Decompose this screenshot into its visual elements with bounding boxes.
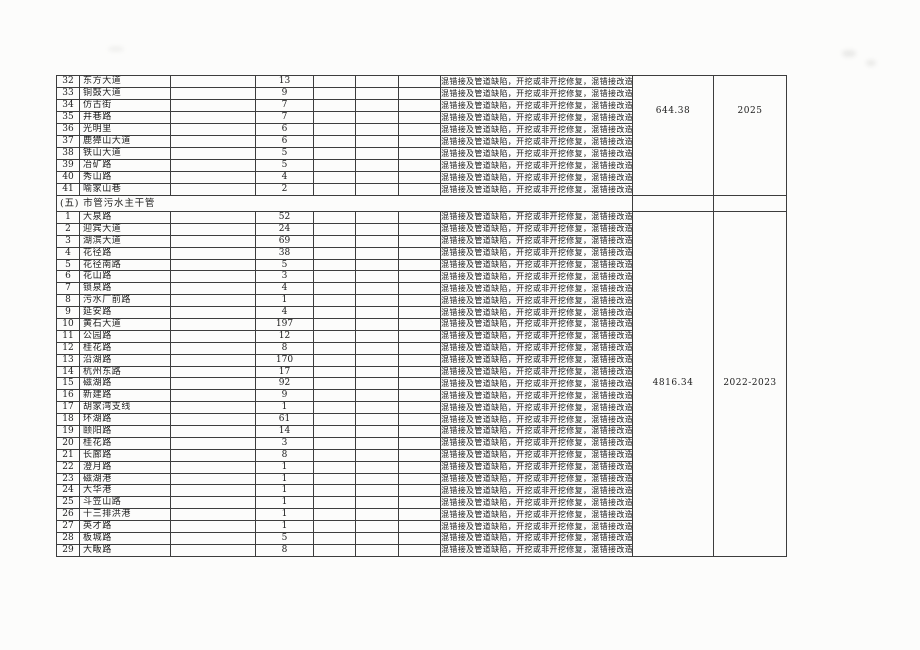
- defect-count-cell: 3: [256, 271, 314, 283]
- empty-cell: [356, 247, 399, 259]
- rehab-method-cell: 混错接及管道缺陷，开挖或非开挖修复，混错接改造: [441, 136, 633, 148]
- empty-cell: [399, 414, 441, 426]
- empty-cell: [356, 497, 399, 509]
- street-name-cell: 长廊路: [80, 449, 171, 461]
- empty-cell: [356, 533, 399, 545]
- street-name-cell: 磁湖港: [80, 473, 171, 485]
- street-name-cell: 冶矿路: [80, 160, 171, 172]
- empty-cell: [356, 330, 399, 342]
- empty-cell: [356, 212, 399, 224]
- empty-cell: [356, 295, 399, 307]
- table-row: 1大泉路52混错接及管道缺陷，开挖或非开挖修复，混错接改造4816.342022…: [57, 212, 787, 224]
- rehab-method-cell: 混错接及管道缺陷，开挖或非开挖修复，混错接改造: [441, 271, 633, 283]
- defect-count-cell: 24: [256, 223, 314, 235]
- empty-cell: [356, 437, 399, 449]
- row-number-cell: 27: [57, 521, 80, 533]
- rehab-method-cell: 混错接及管道缺陷，开挖或非开挖修复，混错接改造: [441, 212, 633, 224]
- empty-cell: [399, 366, 441, 378]
- row-number-cell: 12: [57, 342, 80, 354]
- row-number-cell: 36: [57, 124, 80, 136]
- empty-cell: [171, 259, 256, 271]
- rehab-method-cell: 混错接及管道缺陷，开挖或非开挖修复，混错接改造: [441, 426, 633, 438]
- defect-count-cell: 38: [256, 247, 314, 259]
- street-name-cell: 新建路: [80, 390, 171, 402]
- empty-cell: [399, 521, 441, 533]
- implementation-years-cell: 2022-2023: [714, 212, 787, 557]
- empty-cell: [314, 88, 356, 100]
- rehab-method-cell: 混错接及管道缺陷，开挖或非开挖修复，混错接改造: [441, 148, 633, 160]
- street-name-cell: 板城路: [80, 533, 171, 545]
- empty-cell: [399, 295, 441, 307]
- empty-cell: [314, 172, 356, 184]
- empty-cell: [314, 148, 356, 160]
- empty-cell: [399, 160, 441, 172]
- scan-artifact: [866, 60, 876, 66]
- defect-count-cell: 1: [256, 461, 314, 473]
- sewage-pipe-rehab-table: 32东方大道13混错接及管道缺陷，开挖或非开挖修复，混错接改造644.38202…: [56, 75, 787, 557]
- street-name-cell: 迎宾大道: [80, 223, 171, 235]
- rehab-method-cell: 混错接及管道缺陷，开挖或非开挖修复，混错接改造: [441, 223, 633, 235]
- row-number-cell: 14: [57, 366, 80, 378]
- defect-count-cell: 8: [256, 449, 314, 461]
- empty-cell: [356, 235, 399, 247]
- empty-cell: [399, 533, 441, 545]
- empty-cell: [399, 283, 441, 295]
- empty-cell: [171, 172, 256, 184]
- row-number-cell: 22: [57, 461, 80, 473]
- section-header-row: (五) 市管污水主干管: [57, 196, 787, 212]
- row-number-cell: 25: [57, 497, 80, 509]
- empty-cell: [314, 485, 356, 497]
- row-number-cell: 40: [57, 172, 80, 184]
- rehab-method-cell: 混错接及管道缺陷，开挖或非开挖修复，混错接改造: [441, 76, 633, 88]
- street-name-cell: 杭州东路: [80, 366, 171, 378]
- empty-cell: [356, 449, 399, 461]
- street-name-cell: 桂花路: [80, 342, 171, 354]
- empty-cell: [171, 497, 256, 509]
- empty-cell: [171, 223, 256, 235]
- empty-cell: [314, 184, 356, 196]
- empty-cell: [171, 283, 256, 295]
- row-number-cell: 6: [57, 271, 80, 283]
- street-name-cell: 秀山路: [80, 172, 171, 184]
- empty-cell: [314, 533, 356, 545]
- street-name-cell: 仿古街: [80, 100, 171, 112]
- row-number-cell: 39: [57, 160, 80, 172]
- street-name-cell: 环湖路: [80, 414, 171, 426]
- empty-cell: [356, 100, 399, 112]
- defect-count-cell: 7: [256, 112, 314, 124]
- row-number-cell: 5: [57, 259, 80, 271]
- empty-cell: [356, 485, 399, 497]
- empty-cell: [399, 426, 441, 438]
- empty-cell: [314, 366, 356, 378]
- empty-cell: [399, 259, 441, 271]
- street-name-cell: 斗笠山路: [80, 497, 171, 509]
- empty-cell: [314, 100, 356, 112]
- row-number-cell: 24: [57, 485, 80, 497]
- street-name-cell: 污水厂前路: [80, 295, 171, 307]
- empty-cell: [356, 461, 399, 473]
- rehab-method-cell: 混错接及管道缺陷，开挖或非开挖修复，混错接改造: [441, 378, 633, 390]
- empty-cell: [171, 76, 256, 88]
- empty-cell: [171, 295, 256, 307]
- empty-cell: [314, 259, 356, 271]
- defect-count-cell: 7: [256, 100, 314, 112]
- row-number-cell: 28: [57, 533, 80, 545]
- empty-cell: [171, 148, 256, 160]
- empty-cell: [314, 295, 356, 307]
- empty-cell: [171, 473, 256, 485]
- empty-cell: [171, 88, 256, 100]
- row-number-cell: 8: [57, 295, 80, 307]
- defect-count-cell: 1: [256, 509, 314, 521]
- empty-cell: [399, 319, 441, 331]
- row-number-cell: 37: [57, 136, 80, 148]
- empty-cell: [356, 259, 399, 271]
- rehab-method-cell: 混错接及管道缺陷，开挖或非开挖修复，混错接改造: [441, 533, 633, 545]
- row-number-cell: 26: [57, 509, 80, 521]
- defect-count-cell: 4: [256, 307, 314, 319]
- rehab-method-cell: 混错接及管道缺陷，开挖或非开挖修复，混错接改造: [441, 366, 633, 378]
- rehab-method-cell: 混错接及管道缺陷，开挖或非开挖修复，混错接改造: [441, 521, 633, 533]
- defect-count-cell: 9: [256, 390, 314, 402]
- street-name-cell: 铜鼓大道: [80, 88, 171, 100]
- empty-cell: [171, 521, 256, 533]
- defect-count-cell: 8: [256, 342, 314, 354]
- defect-count-cell: 5: [256, 533, 314, 545]
- defect-count-cell: 8: [256, 544, 314, 556]
- empty-cell: [399, 112, 441, 124]
- empty-cell: [356, 160, 399, 172]
- street-name-cell: 大华港: [80, 485, 171, 497]
- row-number-cell: 21: [57, 449, 80, 461]
- empty-cell: [399, 509, 441, 521]
- rehab-method-cell: 混错接及管道缺陷，开挖或非开挖修复，混错接改造: [441, 354, 633, 366]
- defect-count-cell: 5: [256, 160, 314, 172]
- scan-artifact: [108, 46, 124, 52]
- row-number-cell: 16: [57, 390, 80, 402]
- empty-cell: [399, 235, 441, 247]
- row-number-cell: 9: [57, 307, 80, 319]
- row-number-cell: 19: [57, 426, 80, 438]
- defect-count-cell: 6: [256, 136, 314, 148]
- empty-cell: [171, 378, 256, 390]
- defect-count-cell: 4: [256, 283, 314, 295]
- defect-count-cell: 1: [256, 497, 314, 509]
- row-number-cell: 3: [57, 235, 80, 247]
- street-name-cell: 东方大道: [80, 76, 171, 88]
- table-row: 32东方大道13混错接及管道缺陷，开挖或非开挖修复，混错接改造644.38202…: [57, 76, 787, 88]
- empty-cell: [399, 247, 441, 259]
- rehab-method-cell: 混错接及管道缺陷，开挖或非开挖修复，混错接改造: [441, 330, 633, 342]
- street-name-cell: 公园路: [80, 330, 171, 342]
- defect-count-cell: 2: [256, 184, 314, 196]
- rehab-method-cell: 混错接及管道缺陷，开挖或非开挖修复，混错接改造: [441, 437, 633, 449]
- empty-cell: [171, 307, 256, 319]
- street-name-cell: 黄石大道: [80, 319, 171, 331]
- defect-count-cell: 13: [256, 76, 314, 88]
- defect-count-cell: 69: [256, 235, 314, 247]
- empty-cell: [399, 378, 441, 390]
- empty-cell: [171, 160, 256, 172]
- empty-cell: [356, 124, 399, 136]
- empty-cell: [356, 414, 399, 426]
- empty-cell: [314, 330, 356, 342]
- defect-count-cell: 197: [256, 319, 314, 331]
- empty-cell: [171, 414, 256, 426]
- empty-cell: [356, 148, 399, 160]
- rehab-method-cell: 混错接及管道缺陷，开挖或非开挖修复，混错接改造: [441, 497, 633, 509]
- empty-cell: [171, 235, 256, 247]
- empty-cell: [171, 533, 256, 545]
- defect-count-cell: 92: [256, 378, 314, 390]
- street-name-cell: 花径路: [80, 247, 171, 259]
- rehab-method-cell: 混错接及管道缺陷，开挖或非开挖修复，混错接改造: [441, 112, 633, 124]
- rehab-method-cell: 混错接及管道缺陷，开挖或非开挖修复，混错接改造: [441, 172, 633, 184]
- empty-cell: [314, 124, 356, 136]
- empty-cell: [314, 521, 356, 533]
- empty-cell: [314, 544, 356, 556]
- empty-cell: [399, 184, 441, 196]
- empty-cell: [171, 212, 256, 224]
- empty-cell: [399, 497, 441, 509]
- empty-cell: [314, 378, 356, 390]
- empty-cell: [399, 88, 441, 100]
- empty-cell: [314, 160, 356, 172]
- rehab-method-cell: 混错接及管道缺陷，开挖或非开挖修复，混错接改造: [441, 390, 633, 402]
- rehab-method-cell: 混错接及管道缺陷，开挖或非开挖修复，混错接改造: [441, 449, 633, 461]
- defect-count-cell: 6: [256, 124, 314, 136]
- empty-cell: [171, 402, 256, 414]
- empty-cell: [356, 544, 399, 556]
- empty-cell: [314, 223, 356, 235]
- document-page: 32东方大道13混错接及管道缺陷，开挖或非开挖修复，混错接改造644.38202…: [0, 0, 920, 650]
- empty-cell: [356, 366, 399, 378]
- empty-cell: [171, 354, 256, 366]
- street-name-cell: 喻家山巷: [80, 184, 171, 196]
- street-name-cell: 铁山大道: [80, 148, 171, 160]
- row-number-cell: 1: [57, 212, 80, 224]
- empty-cell: [399, 76, 441, 88]
- rehab-method-cell: 混错接及管道缺陷，开挖或非开挖修复，混错接改造: [441, 319, 633, 331]
- rehab-method-cell: 混错接及管道缺陷，开挖或非开挖修复，混错接改造: [441, 247, 633, 259]
- empty-cell: [356, 426, 399, 438]
- street-name-cell: 锁泉路: [80, 283, 171, 295]
- empty-cell: [171, 136, 256, 148]
- empty-cell: [399, 307, 441, 319]
- street-name-cell: 胡家湾支线: [80, 402, 171, 414]
- investment-amount-cell: 4816.34: [633, 212, 714, 557]
- defect-count-cell: 1: [256, 402, 314, 414]
- empty-cell: [314, 437, 356, 449]
- empty-cell: [314, 271, 356, 283]
- row-number-cell: 29: [57, 544, 80, 556]
- rehab-method-cell: 混错接及管道缺陷，开挖或非开挖修复，混错接改造: [441, 184, 633, 196]
- empty-cell: [356, 271, 399, 283]
- section-header-label: (五) 市管污水主干管: [57, 196, 633, 212]
- table-body: 32东方大道13混错接及管道缺陷，开挖或非开挖修复，混错接改造644.38202…: [57, 76, 787, 557]
- empty-cell: [171, 366, 256, 378]
- empty-cell: [171, 330, 256, 342]
- empty-cell: [399, 124, 441, 136]
- street-name-cell: 湖滨大道: [80, 235, 171, 247]
- empty-cell: [399, 485, 441, 497]
- empty-cell: [314, 426, 356, 438]
- rehab-method-cell: 混错接及管道缺陷，开挖或非开挖修复，混错接改造: [441, 342, 633, 354]
- empty-cell: [399, 402, 441, 414]
- scan-artifact: [842, 50, 856, 57]
- row-number-cell: 2: [57, 223, 80, 235]
- empty-cell: [314, 402, 356, 414]
- empty-cell: [356, 521, 399, 533]
- empty-cell: [399, 212, 441, 224]
- empty-cell: [356, 319, 399, 331]
- investment-amount-cell: 644.38: [633, 76, 714, 196]
- empty-cell: [171, 485, 256, 497]
- street-name-cell: 花山路: [80, 271, 171, 283]
- implementation-years-cell: 2025: [714, 76, 787, 196]
- empty-cell: [356, 509, 399, 521]
- defect-count-cell: 52: [256, 212, 314, 224]
- defect-count-cell: 1: [256, 473, 314, 485]
- empty-cell: [314, 235, 356, 247]
- empty-cell: [314, 247, 356, 259]
- empty-cell: [356, 378, 399, 390]
- rehab-method-cell: 混错接及管道缺陷，开挖或非开挖修复，混错接改造: [441, 544, 633, 556]
- empty-cell: [314, 473, 356, 485]
- empty-cell: [356, 112, 399, 124]
- street-name-cell: 井巷路: [80, 112, 171, 124]
- empty-cell: [314, 342, 356, 354]
- section-header-years-cell: [714, 196, 787, 212]
- defect-count-cell: 1: [256, 485, 314, 497]
- empty-cell: [399, 271, 441, 283]
- row-number-cell: 23: [57, 473, 80, 485]
- empty-cell: [356, 172, 399, 184]
- row-number-cell: 17: [57, 402, 80, 414]
- empty-cell: [171, 509, 256, 521]
- defect-count-cell: 1: [256, 295, 314, 307]
- empty-cell: [356, 184, 399, 196]
- empty-cell: [171, 112, 256, 124]
- defect-count-cell: 1: [256, 521, 314, 533]
- empty-cell: [399, 473, 441, 485]
- defect-count-cell: 3: [256, 437, 314, 449]
- row-number-cell: 38: [57, 148, 80, 160]
- defect-count-cell: 4: [256, 172, 314, 184]
- rehab-method-cell: 混错接及管道缺陷，开挖或非开挖修复，混错接改造: [441, 307, 633, 319]
- rehab-method-cell: 混错接及管道缺陷，开挖或非开挖修复，混错接改造: [441, 235, 633, 247]
- empty-cell: [314, 354, 356, 366]
- empty-cell: [356, 76, 399, 88]
- empty-cell: [314, 414, 356, 426]
- rehab-method-cell: 混错接及管道缺陷，开挖或非开挖修复，混错接改造: [441, 88, 633, 100]
- empty-cell: [171, 319, 256, 331]
- empty-cell: [314, 76, 356, 88]
- empty-cell: [399, 544, 441, 556]
- rehab-method-cell: 混错接及管道缺陷，开挖或非开挖修复，混错接改造: [441, 100, 633, 112]
- street-name-cell: 大泉路: [80, 212, 171, 224]
- empty-cell: [171, 437, 256, 449]
- rehab-method-cell: 混错接及管道缺陷，开挖或非开挖修复，混错接改造: [441, 402, 633, 414]
- rehab-method-cell: 混错接及管道缺陷，开挖或非开挖修复，混错接改造: [441, 473, 633, 485]
- empty-cell: [314, 283, 356, 295]
- rehab-method-cell: 混错接及管道缺陷，开挖或非开挖修复，混错接改造: [441, 283, 633, 295]
- defect-count-cell: 5: [256, 148, 314, 160]
- defect-count-cell: 12: [256, 330, 314, 342]
- row-number-cell: 10: [57, 319, 80, 331]
- empty-cell: [314, 449, 356, 461]
- empty-cell: [171, 461, 256, 473]
- empty-cell: [399, 148, 441, 160]
- row-number-cell: 34: [57, 100, 80, 112]
- street-name-cell: 磁湖路: [80, 378, 171, 390]
- empty-cell: [314, 212, 356, 224]
- empty-cell: [399, 100, 441, 112]
- empty-cell: [399, 172, 441, 184]
- rehab-method-cell: 混错接及管道缺陷，开挖或非开挖修复，混错接改造: [441, 124, 633, 136]
- empty-cell: [314, 497, 356, 509]
- row-number-cell: 35: [57, 112, 80, 124]
- empty-cell: [399, 330, 441, 342]
- rehab-method-cell: 混错接及管道缺陷，开挖或非开挖修复，混错接改造: [441, 461, 633, 473]
- empty-cell: [356, 473, 399, 485]
- empty-cell: [171, 449, 256, 461]
- rehab-method-cell: 混错接及管道缺陷，开挖或非开挖修复，混错接改造: [441, 414, 633, 426]
- empty-cell: [356, 390, 399, 402]
- street-name-cell: 英才路: [80, 521, 171, 533]
- row-number-cell: 7: [57, 283, 80, 295]
- row-number-cell: 18: [57, 414, 80, 426]
- empty-cell: [356, 223, 399, 235]
- row-number-cell: 13: [57, 354, 80, 366]
- defect-count-cell: 17: [256, 366, 314, 378]
- row-number-cell: 20: [57, 437, 80, 449]
- rehab-method-cell: 混错接及管道缺陷，开挖或非开挖修复，混错接改造: [441, 259, 633, 271]
- empty-cell: [356, 307, 399, 319]
- defect-count-cell: 9: [256, 88, 314, 100]
- empty-cell: [399, 342, 441, 354]
- empty-cell: [399, 461, 441, 473]
- empty-cell: [171, 100, 256, 112]
- empty-cell: [171, 184, 256, 196]
- defect-count-cell: 61: [256, 414, 314, 426]
- empty-cell: [171, 124, 256, 136]
- defect-count-cell: 170: [256, 354, 314, 366]
- street-name-cell: 光明里: [80, 124, 171, 136]
- empty-cell: [314, 112, 356, 124]
- row-number-cell: 15: [57, 378, 80, 390]
- section-header-amount-cell: [633, 196, 714, 212]
- empty-cell: [171, 247, 256, 259]
- empty-cell: [314, 509, 356, 521]
- row-number-cell: 32: [57, 76, 80, 88]
- empty-cell: [171, 544, 256, 556]
- row-number-cell: 11: [57, 330, 80, 342]
- street-name-cell: 颐阳路: [80, 426, 171, 438]
- street-name-cell: 延安路: [80, 307, 171, 319]
- street-name-cell: 花径南路: [80, 259, 171, 271]
- empty-cell: [399, 449, 441, 461]
- rehab-method-cell: 混错接及管道缺陷，开挖或非开挖修复，混错接改造: [441, 160, 633, 172]
- empty-cell: [399, 354, 441, 366]
- empty-cell: [171, 390, 256, 402]
- empty-cell: [314, 390, 356, 402]
- empty-cell: [314, 461, 356, 473]
- empty-cell: [399, 223, 441, 235]
- empty-cell: [356, 342, 399, 354]
